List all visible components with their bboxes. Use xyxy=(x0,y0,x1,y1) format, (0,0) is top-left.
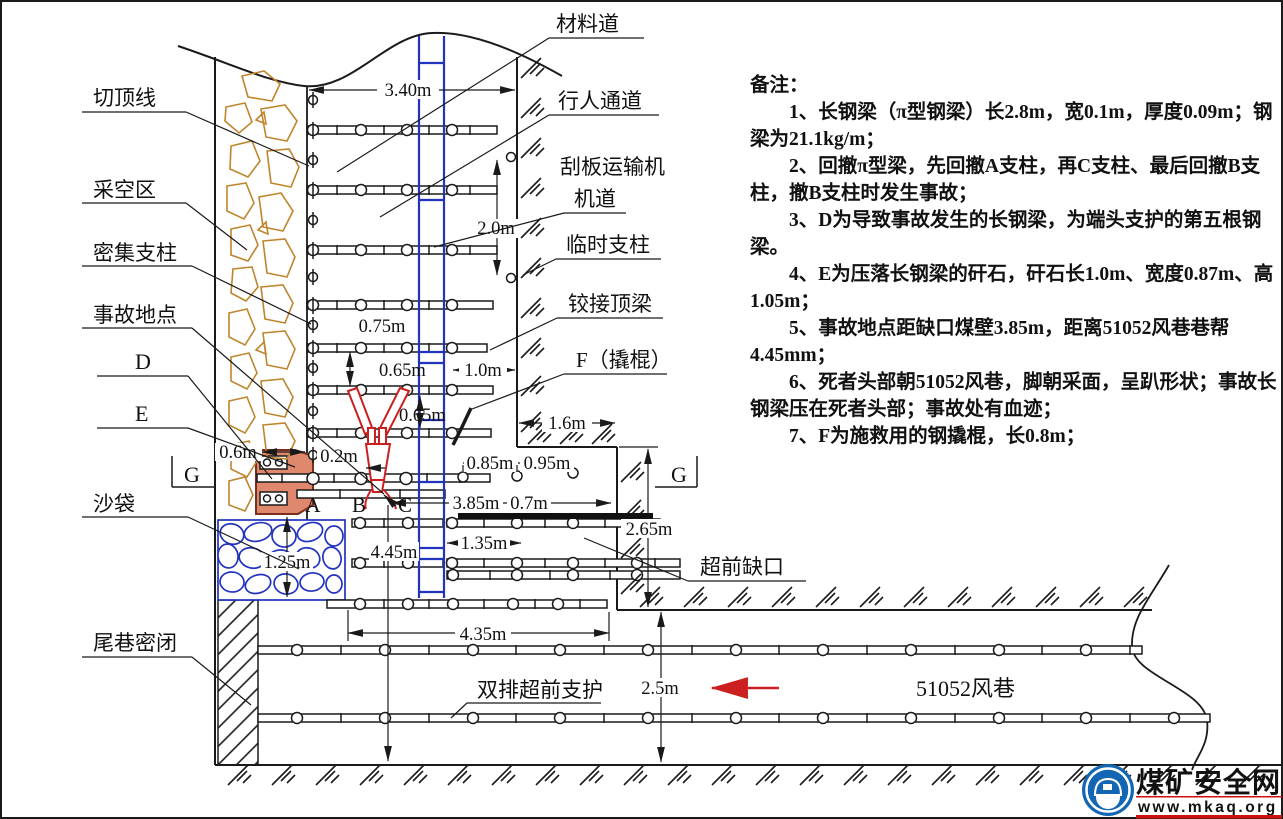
dim-beam-to-wall: 1.0m xyxy=(464,361,502,381)
dim-extra: 0.7m xyxy=(510,494,548,514)
logo-site-url: www.mkaq.org xyxy=(1137,799,1278,816)
label-temp-prop: 临时支柱 xyxy=(566,233,650,257)
label-dense-props: 密集支柱 xyxy=(93,241,177,265)
victim-head xyxy=(371,480,384,492)
dim-prop-b: 0.95m xyxy=(524,454,571,474)
label-d: D xyxy=(135,349,151,374)
watermark-logo: 煤矿安全网 www.mkaq.org xyxy=(1082,764,1282,819)
note-item: 6、死者头部朝51052风巷，脚朝采面，呈趴形状；事故长钢梁压在死者头部；事故处… xyxy=(750,369,1278,423)
dim-notch-depth: 2.65m xyxy=(626,520,673,540)
label-material-road: 材料道 xyxy=(556,12,619,36)
temp-prop-top xyxy=(507,153,516,162)
label-prop-c: C xyxy=(398,493,412,517)
label-advance-notch: 超前缺口 xyxy=(700,555,784,579)
dim-top-width: 3.40m xyxy=(385,81,432,101)
label-g-left: G xyxy=(184,462,200,487)
dim-airway-width: 2.5m xyxy=(641,679,679,699)
dim-prop-a: 0.85m xyxy=(467,454,514,474)
dim-to-airway: 4.45m xyxy=(371,543,418,563)
note-item: 4、E为压落长钢梁的矸石，矸石长1.0m、宽度0.87m、高1.05m； xyxy=(750,261,1278,315)
dim-to-notch-wall: 3.85m xyxy=(453,494,500,514)
note-item: 1、长钢梁（π型钢梁）长2.8m，宽0.1m，厚度0.09m；钢梁为21.1kg… xyxy=(750,99,1278,153)
note-item: 5、事故地点距缺口煤壁3.85m，距离51052风巷巷帮4.45mm； xyxy=(750,315,1278,369)
dim-offset-b: 0.2m xyxy=(320,447,358,467)
break-line-right xyxy=(1132,565,1207,770)
dim-beam-overlap: 1.35m xyxy=(461,534,508,554)
crowbar-f xyxy=(453,408,471,445)
label-double-row-support: 双排超前支护 xyxy=(477,678,603,702)
dim-row-gap1: 0.65m xyxy=(379,361,426,381)
label-sandbags: 沙袋 xyxy=(93,492,135,516)
notch-prop-2 xyxy=(512,471,522,481)
label-prop-b: B xyxy=(352,493,366,517)
dim-prop-span: 0.75m xyxy=(359,317,406,337)
label-f-crowbar: F（撬棍） xyxy=(576,348,672,372)
dim-notch-top: 1.6m xyxy=(548,414,586,434)
temp-prop-bottom xyxy=(507,274,516,283)
label-g-right: G xyxy=(671,462,687,487)
label-tail-seal: 尾巷密闭 xyxy=(93,631,177,655)
dim-row-gap2: 0.65m xyxy=(399,406,446,426)
notes-title: 备注： xyxy=(750,72,1278,99)
dim-bottom-span: 4.35m xyxy=(460,625,507,645)
label-machine-lane: 机道 xyxy=(574,187,616,211)
label-hinged-beam: 铰接顶梁 xyxy=(568,292,652,316)
label-e: E xyxy=(135,401,148,426)
logo-site-name: 煤矿安全网 xyxy=(1136,766,1281,799)
label-cut-top-line: 切顶线 xyxy=(93,86,156,110)
label-walkway: 行人通道 xyxy=(558,89,642,113)
note-item: 3、D为导致事故发生的长钢梁，为端头支护的第五根钢梁。 xyxy=(750,207,1278,261)
scraper-conveyor-body xyxy=(419,36,444,598)
label-prop-a: A xyxy=(305,493,321,517)
label-airway: 51052风巷 xyxy=(916,676,1015,701)
notes-block: 备注： 1、长钢梁（π型钢梁）长2.8m，宽0.1m，厚度0.09m；钢梁为21… xyxy=(750,72,1278,450)
label-gob-area: 采空区 xyxy=(93,178,156,202)
roof-wave-line xyxy=(178,33,562,86)
label-accident-site: 事故地点 xyxy=(93,303,177,327)
dim-wall-height: 2.0m xyxy=(477,219,515,239)
label-scraper-conveyor: 刮板运输机 xyxy=(560,155,665,179)
diagram-canvas: 3.40m 2.0m 0.75m 0.65m 0.65m 1.0m 1.6m 0… xyxy=(0,0,1283,819)
note-item: 2、回撤π型梁，先回撤A支柱，再C支柱、最后回撤B支柱，撤B支柱时发生事故； xyxy=(750,153,1278,207)
note-item: 7、F为施救用的钢撬棍，长0.8m； xyxy=(750,423,1278,450)
gob-and-sandbag-pattern xyxy=(216,71,343,597)
